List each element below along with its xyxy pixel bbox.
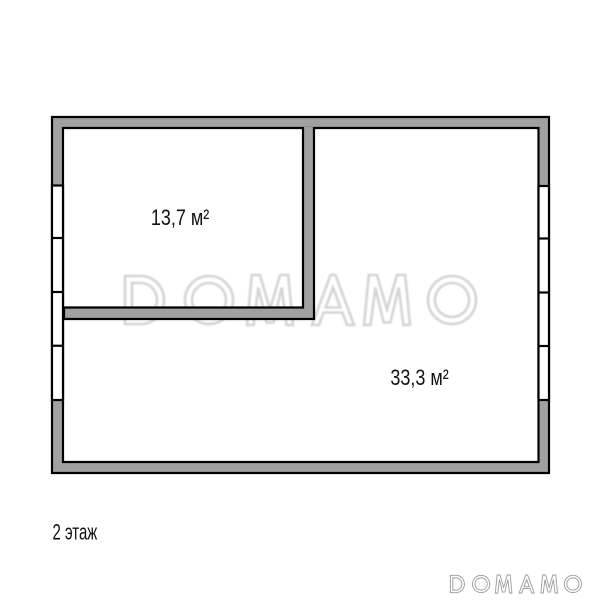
svg-text:33,3 м²: 33,3 м² (390, 366, 449, 390)
svg-text:2 этаж: 2 этаж (53, 520, 98, 545)
svg-text:13,7 м²: 13,7 м² (151, 206, 210, 230)
